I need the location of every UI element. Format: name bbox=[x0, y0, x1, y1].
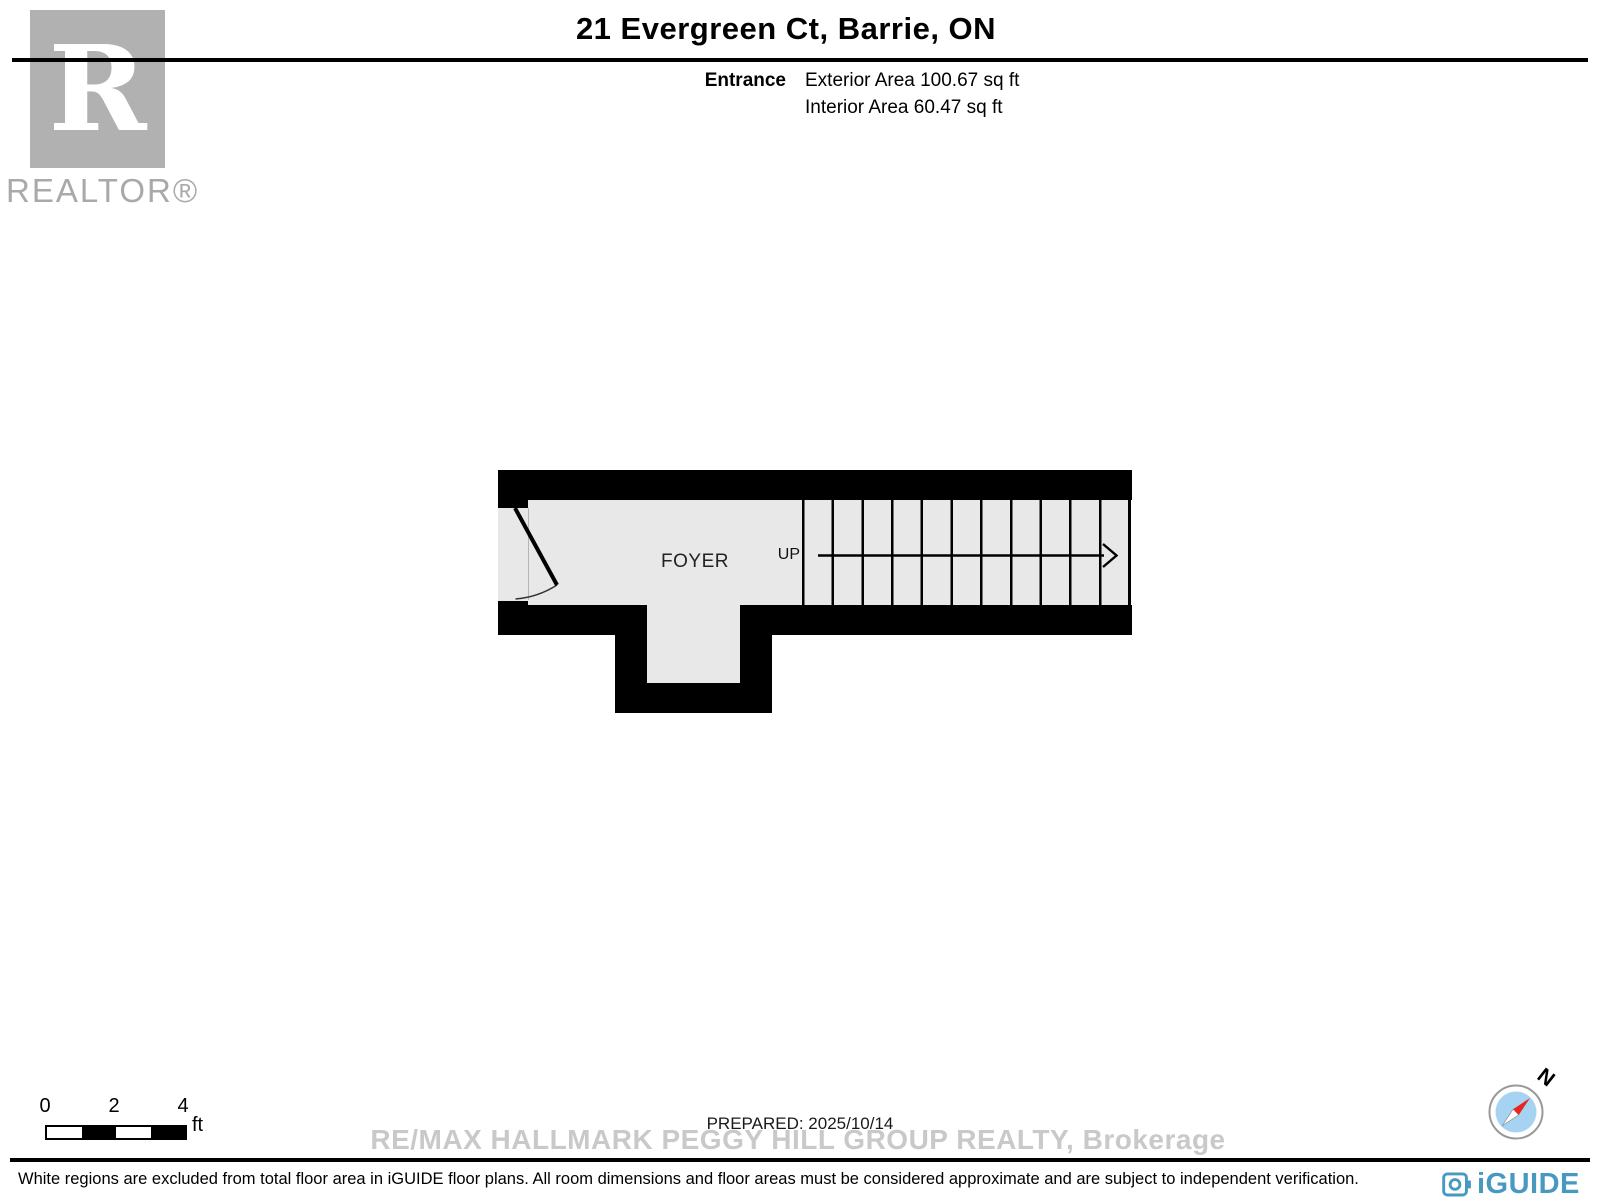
floorplan-page: R REALTOR® 21 Evergreen Ct, Barrie, ON E… bbox=[0, 0, 1600, 1198]
floor-name-label: Entrance bbox=[640, 70, 786, 92]
header-divider-line bbox=[12, 58, 1588, 62]
disclaimer-text: White regions are excluded from total fl… bbox=[18, 1170, 1359, 1189]
realtor-wordmark: REALTOR® bbox=[6, 172, 196, 210]
iguide-logo-icon bbox=[1442, 1170, 1472, 1198]
up-arrow-icon bbox=[1103, 544, 1117, 567]
iguide-logo: iGUIDE bbox=[1442, 1168, 1580, 1198]
room-label-foyer: FOYER bbox=[645, 551, 745, 573]
realtor-logo: R bbox=[30, 10, 165, 168]
iguide-wordmark: iGUIDE bbox=[1477, 1168, 1580, 1198]
compass-icon bbox=[1486, 1082, 1546, 1142]
realtor-logo-letter: R bbox=[48, 30, 146, 148]
stairs-up-label: UP bbox=[758, 546, 800, 564]
door-swing-icon bbox=[516, 585, 558, 599]
plan-linework bbox=[490, 460, 1140, 720]
door-leaf bbox=[515, 508, 557, 585]
exterior-area-value: Exterior Area 100.67 sq ft bbox=[805, 70, 1019, 92]
interior-area-value: Interior Area 60.47 sq ft bbox=[805, 97, 1003, 119]
page-title: 21 Evergreen Ct, Barrie, ON bbox=[0, 11, 1572, 47]
footer-divider-line bbox=[10, 1158, 1590, 1162]
prepared-date: PREPARED: 2025/10/14 bbox=[0, 1114, 1600, 1134]
